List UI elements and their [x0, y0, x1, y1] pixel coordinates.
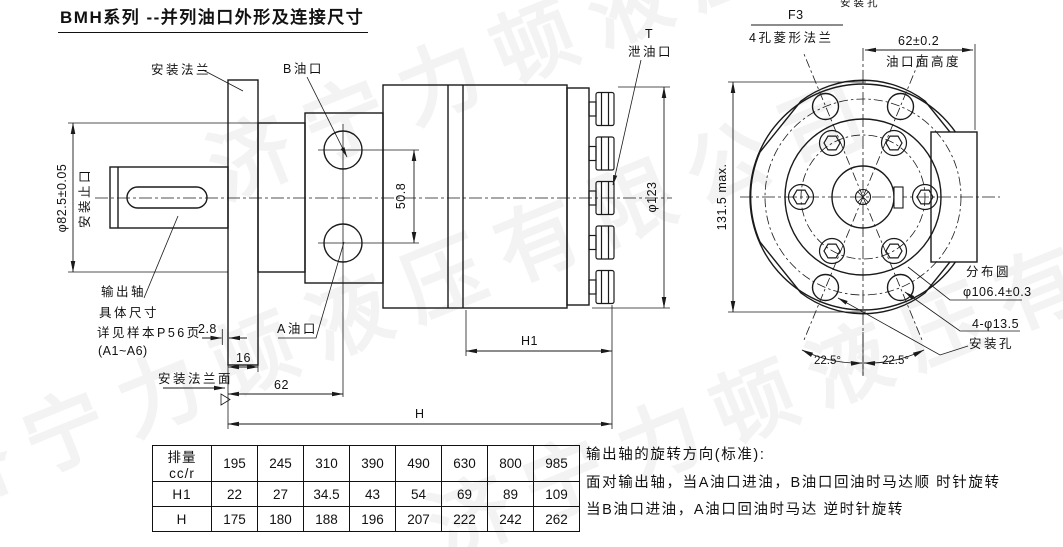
output-shaft	[110, 167, 228, 228]
pitch-circle-dia-text: φ106.4±0.3	[963, 285, 1032, 299]
dim-h-text: H	[415, 407, 425, 421]
port-b-label: B油口	[283, 62, 324, 76]
front-view: F3 4孔菱形法兰 安装孔	[715, 0, 1032, 376]
row-label: H	[153, 507, 212, 532]
displacement-table: 排量 cc/r 195 245 310 390 490 630 800 985 …	[152, 445, 580, 532]
note-line: 输出轴的旋转方向(标准):	[586, 442, 1001, 470]
mount-holes-text: 4-φ13.5	[972, 317, 1019, 331]
dim-50-8-text: 50.8	[394, 183, 408, 209]
datasheet-page: 济宁力顿液压有限公司 济宁力顿液压有限公司 济宁力顿液压有限公司 BMH系列 -…	[0, 0, 1063, 547]
note-line: 面对输出轴，当A油口进油，B油口回油时马达顺 时针旋转	[586, 470, 1001, 498]
dim-131-5-text: 131.5 max.	[715, 164, 729, 231]
angle-left-text: 22.5°	[814, 355, 841, 367]
end-cover	[567, 88, 589, 305]
port-face-height-label: 油口面高度	[886, 54, 961, 69]
drain-port-label: 泄油口	[628, 45, 673, 59]
f3-label: F3	[788, 8, 804, 22]
dim-dia123: φ123	[592, 87, 670, 308]
port-b-leader	[307, 77, 347, 157]
shaft-note-1: 具体尺寸	[99, 306, 159, 320]
output-shaft-label: 输出轴	[101, 284, 146, 299]
row-label: 排量 cc/r	[153, 446, 212, 482]
keyway-slot	[127, 187, 207, 208]
pitch-circle-callout: 分布圆 φ106.4±0.3	[908, 265, 1032, 300]
mount-holes-callout: 4-φ13.5 安装孔	[838, 292, 1020, 355]
dim-50-8: 50.8	[394, 150, 414, 243]
port-a-label: A油口	[277, 322, 318, 336]
dim-16: 16	[228, 351, 258, 372]
rotation-notes: 输出轴的旋转方向(标准): 面对输出轴，当A油口进油，B油口回油时马达顺 时针旋…	[586, 442, 1001, 525]
dim-spigot: φ82.5±0.05 安装止口	[55, 123, 305, 272]
dim-16-text: 16	[236, 351, 251, 365]
pilot-spigot	[258, 123, 305, 272]
spigot-label: 安装止口	[77, 168, 92, 228]
side-view: 50.8 φ82.5±0.05 安装止口 φ123	[55, 27, 673, 429]
dim-62-text: 62	[274, 378, 289, 392]
datum-triangle	[221, 394, 230, 405]
shaft-note-2: 详见样本P56页	[97, 325, 202, 340]
dia123-text: φ123	[645, 182, 659, 213]
mount-holes-label: 安装孔	[969, 336, 1014, 351]
mounting-flange-label: 安装法兰	[151, 62, 211, 77]
dim-h1-text: H1	[521, 334, 538, 348]
flange-face-label: 安装法兰面	[158, 371, 233, 386]
note-line: 当B油口进油，A油口回油时马达 逆时针旋转	[586, 497, 1001, 525]
angle-right-text: 22.5°	[882, 355, 909, 367]
flange-type-label: 4孔菱形法兰	[749, 31, 833, 45]
dim-62-02-text: 62±0.2	[898, 34, 939, 48]
table-row: H1 22 27 34.5 43 54 69 89 109	[153, 482, 580, 507]
top-mount-hole-label: 安装孔	[840, 0, 881, 9]
drain-t-label: T	[645, 27, 653, 41]
dim-angles: 22.5° 22.5°	[802, 332, 924, 376]
table-row: 排量 cc/r 195 245 310 390 490 630 800 985	[153, 446, 580, 482]
pitch-circle-label: 分布圆	[966, 265, 1011, 279]
dim-2-8: 2.8	[198, 322, 247, 345]
drain-leader	[613, 60, 641, 185]
shaft-note-3: (A1~A6)	[98, 344, 148, 358]
spigot-dia-text: φ82.5±0.05	[55, 164, 69, 233]
dim-h1: H1	[466, 310, 612, 356]
keyway-front	[894, 187, 903, 208]
row-label: H1	[153, 482, 212, 507]
table-row: H 175 180 188 196 207 222 242 262	[153, 507, 580, 532]
dim-62: 62	[228, 378, 343, 394]
